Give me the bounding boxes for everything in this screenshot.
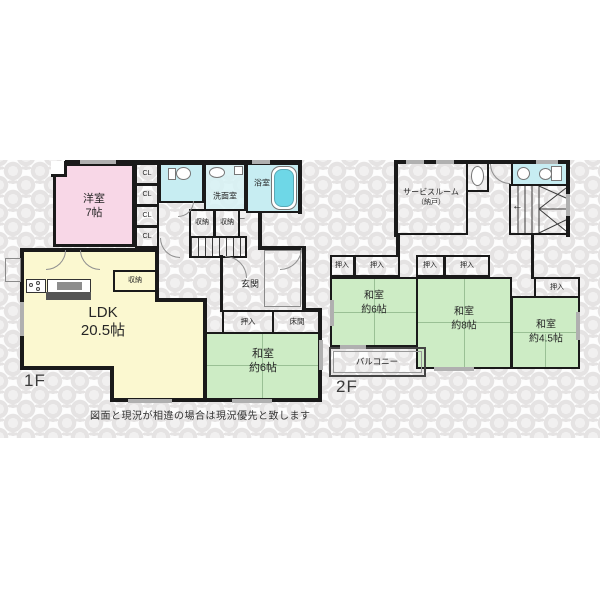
oshiire-label-d: 押入 (460, 262, 474, 270)
closet-label-1: CL (143, 170, 152, 178)
window-marker (128, 399, 172, 403)
storage-label-ldk: 収納 (128, 277, 142, 285)
wall (531, 235, 534, 279)
floor1-label: 1F (24, 371, 46, 391)
oshiire-label-b: 押入 (370, 262, 384, 270)
window-marker (536, 160, 558, 164)
closet-label-4: CL (143, 233, 152, 241)
balcony-label: バルコニー (356, 357, 398, 366)
room-label-service-2: （納戸） (417, 199, 445, 207)
stairs-1f (189, 236, 247, 258)
burner-icon (29, 283, 33, 287)
basin-icon (471, 166, 484, 186)
kitchen-counter-front-icon (46, 292, 91, 300)
side-door-box (5, 258, 21, 282)
toilet-bowl-icon-2f (517, 167, 530, 180)
room-label-yoshitsu: 洋室 (83, 193, 105, 205)
closet-label-3: CL (143, 212, 152, 220)
window-marker (20, 302, 24, 336)
wall (396, 235, 400, 257)
oshiire-label-c: 押入 (423, 262, 437, 270)
window-marker (319, 340, 323, 370)
tokonoma-label: 床間 (290, 318, 305, 326)
floorplan-canvas: 洋室 7帖 CL CL CL CL 洗面室 浴室 収納 収納 ← LDK 20.… (0, 0, 600, 600)
wall (394, 160, 398, 237)
room-label-senmen: 洗面室 (213, 193, 237, 202)
toilet-tank-icon (168, 168, 176, 180)
closet-label-2: CL (143, 191, 152, 199)
burner-icon (36, 281, 40, 285)
oshiire-label-a: 押入 (335, 262, 349, 270)
toilet-tank-icon-2f (551, 166, 562, 181)
wall (302, 246, 306, 312)
room-size-washitsu6: 約6帖 (361, 305, 387, 316)
stairs-arrow-icon-2f: ← (512, 201, 523, 212)
toilet-seat-icon-2f (539, 168, 552, 180)
room-label-washitsu-1f: 和室 (252, 348, 274, 360)
room-size-ldk: 20.5帖 (81, 323, 125, 340)
wall (258, 211, 262, 250)
storage-label-a: 収納 (195, 219, 209, 227)
bathtub-icon (274, 169, 294, 207)
wall (155, 298, 207, 302)
washer-icon (234, 166, 243, 175)
disclaimer-text: 図面と現況が相違の場合は現況優先と致します (90, 407, 311, 422)
toilet-bowl-icon (176, 167, 191, 180)
room-label-genkan: 玄関 (241, 280, 259, 290)
room-label-washitsu45: 和室 (536, 320, 556, 331)
wall (110, 366, 114, 400)
room-label-bath: 浴室 (254, 180, 270, 189)
window-marker (330, 300, 334, 326)
room-ldk-area-b (110, 300, 205, 400)
window-marker (406, 160, 424, 164)
oshiire-1f-label: 押入 (241, 318, 256, 326)
room-size-washitsu-1f: 約6帖 (249, 362, 277, 374)
room-size-washitsu45: 約4.5帖 (529, 334, 563, 345)
floor2-label: 2F (336, 377, 358, 397)
window-marker (576, 312, 580, 340)
burner-icon (36, 287, 40, 291)
window-marker (340, 345, 366, 349)
window-marker (80, 160, 116, 164)
window-marker (232, 399, 272, 403)
wall (220, 255, 223, 312)
room-label-ldk: LDK (88, 305, 117, 322)
storage-label-b: 収納 (220, 219, 234, 227)
window-marker (566, 194, 570, 216)
room-label-service-1: サービスルーム (403, 189, 459, 198)
room-size-washitsu8: 約8帖 (451, 321, 477, 332)
window-marker (252, 160, 270, 164)
sink-icon (209, 167, 225, 178)
oshiire-label-e: 押入 (550, 284, 564, 292)
wall (20, 366, 114, 370)
room-label-washitsu6: 和室 (364, 291, 384, 302)
room-size-yoshitsu: 7帖 (85, 207, 102, 219)
stairs-arrow-icon: ← (236, 212, 247, 223)
kitchen-sink-icon (57, 282, 82, 290)
wall (298, 160, 302, 214)
window-marker (436, 160, 454, 164)
window-marker (434, 367, 474, 371)
room-label-washitsu8: 和室 (454, 307, 474, 318)
